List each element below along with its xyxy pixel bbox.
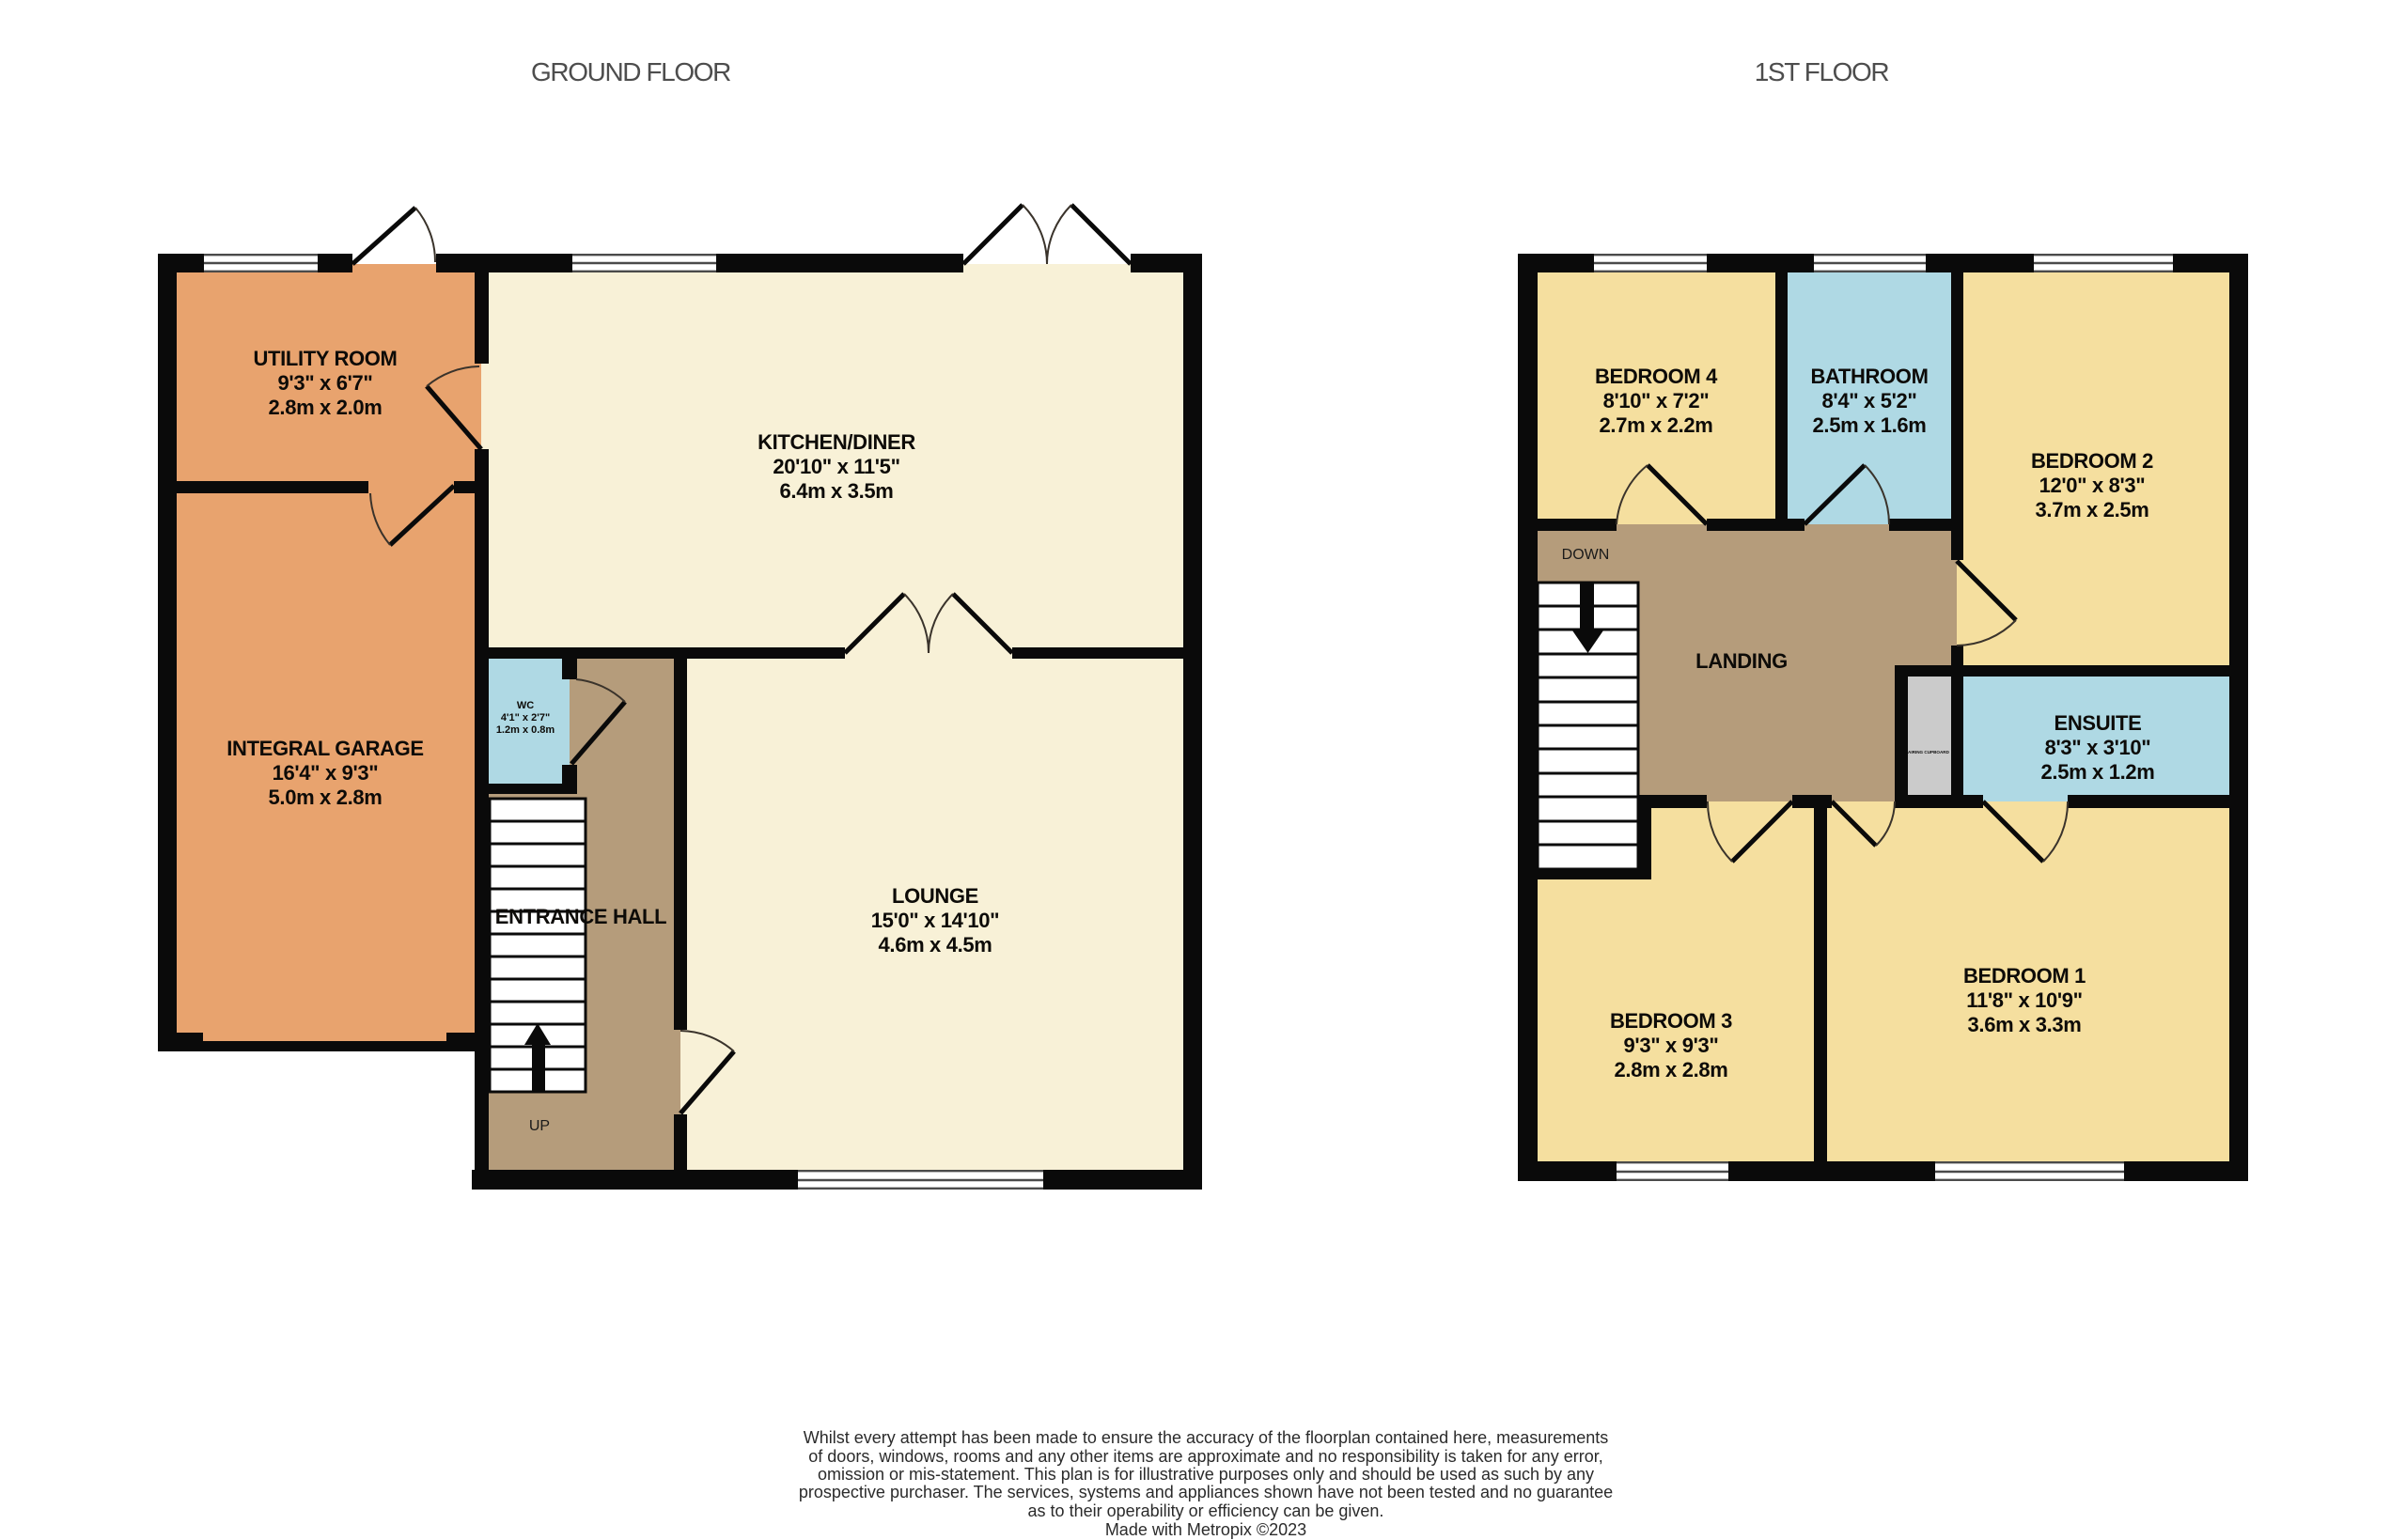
svg-text:12'0" x 8'3": 12'0" x 8'3" [2039, 474, 2146, 497]
svg-text:UP: UP [529, 1118, 550, 1134]
svg-text:3.7m x 2.5m: 3.7m x 2.5m [2036, 498, 2149, 521]
svg-text:6.4m x 3.5m: 6.4m x 3.5m [780, 479, 894, 503]
svg-text:BEDROOM 4: BEDROOM 4 [1595, 365, 1718, 388]
svg-text:prospective purchaser. The ser: prospective purchaser. The services, sys… [799, 1483, 1613, 1501]
svg-text:LOUNGE: LOUNGE [892, 884, 978, 908]
svg-text:as to their operability or eff: as to their operability or efficiency ca… [1028, 1501, 1384, 1520]
svg-text:DOWN: DOWN [1562, 547, 1610, 563]
svg-text:11'8" x 10'9": 11'8" x 10'9" [1966, 988, 2082, 1012]
svg-text:15'0" x 14'10": 15'0" x 14'10" [871, 909, 1000, 932]
svg-text:Whilst every attempt has been: Whilst every attempt has been made to en… [804, 1428, 1608, 1447]
svg-text:8'10" x 7'2": 8'10" x 7'2" [1603, 389, 1710, 412]
svg-text:2.8m x 2.8m: 2.8m x 2.8m [1615, 1058, 1728, 1081]
svg-text:BEDROOM 3: BEDROOM 3 [1610, 1009, 1732, 1033]
svg-text:16'4" x 9'3": 16'4" x 9'3" [273, 761, 379, 785]
svg-text:LANDING: LANDING [1695, 649, 1788, 673]
svg-text:8'4" x 5'2": 8'4" x 5'2" [1822, 389, 1917, 412]
svg-text:1ST FLOOR: 1ST FLOOR [1755, 57, 1889, 86]
svg-text:3.6m x 3.3m: 3.6m x 3.3m [1968, 1013, 2082, 1036]
svg-text:BEDROOM 1: BEDROOM 1 [1963, 964, 2086, 988]
svg-text:of doors, windows, rooms and a: of doors, windows, rooms and any other i… [808, 1447, 1602, 1466]
svg-text:8'3" x 3'10": 8'3" x 3'10" [2045, 736, 2151, 759]
svg-text:2.7m x 2.2m: 2.7m x 2.2m [1600, 413, 1713, 437]
svg-text:INTEGRAL GARAGE: INTEGRAL GARAGE [227, 737, 423, 760]
svg-text:5.0m x 2.8m: 5.0m x 2.8m [269, 786, 383, 809]
svg-text:2.5m x 1.2m: 2.5m x 1.2m [2041, 760, 2155, 784]
svg-text:ENTRANCE HALL: ENTRANCE HALL [495, 905, 666, 928]
svg-text:ENSUITE: ENSUITE [2054, 711, 2142, 735]
svg-text:UTILITY ROOM: UTILITY ROOM [253, 347, 397, 370]
svg-text:4.6m x 4.5m: 4.6m x 4.5m [879, 933, 992, 957]
svg-text:20'10" x 11'5": 20'10" x 11'5" [773, 455, 899, 478]
svg-text:WC: WC [517, 700, 534, 711]
svg-text:omission or mis-statement. Thi: omission or mis-statement. This plan is … [818, 1465, 1594, 1484]
svg-text:4'1" x 2'7": 4'1" x 2'7" [501, 712, 550, 723]
svg-text:1.2m x 0.8m: 1.2m x 0.8m [496, 724, 555, 736]
svg-text:2.5m x 1.6m: 2.5m x 1.6m [1813, 413, 1927, 437]
svg-text:KITCHEN/DINER: KITCHEN/DINER [758, 430, 915, 454]
svg-text:BATHROOM: BATHROOM [1810, 365, 1928, 388]
svg-text:9'3" x 9'3": 9'3" x 9'3" [1624, 1034, 1719, 1057]
svg-text:2.8m x 2.0m: 2.8m x 2.0m [269, 396, 383, 419]
svg-text:BEDROOM 2: BEDROOM 2 [2031, 449, 2153, 473]
svg-text:9'3" x 6'7": 9'3" x 6'7" [278, 371, 373, 395]
svg-text:Made with Metropix ©2023: Made with Metropix ©2023 [1105, 1520, 1306, 1539]
svg-text:GROUND FLOOR: GROUND FLOOR [531, 57, 730, 86]
svg-text:AIRING CUPBOARD: AIRING CUPBOARD [1908, 750, 1950, 754]
